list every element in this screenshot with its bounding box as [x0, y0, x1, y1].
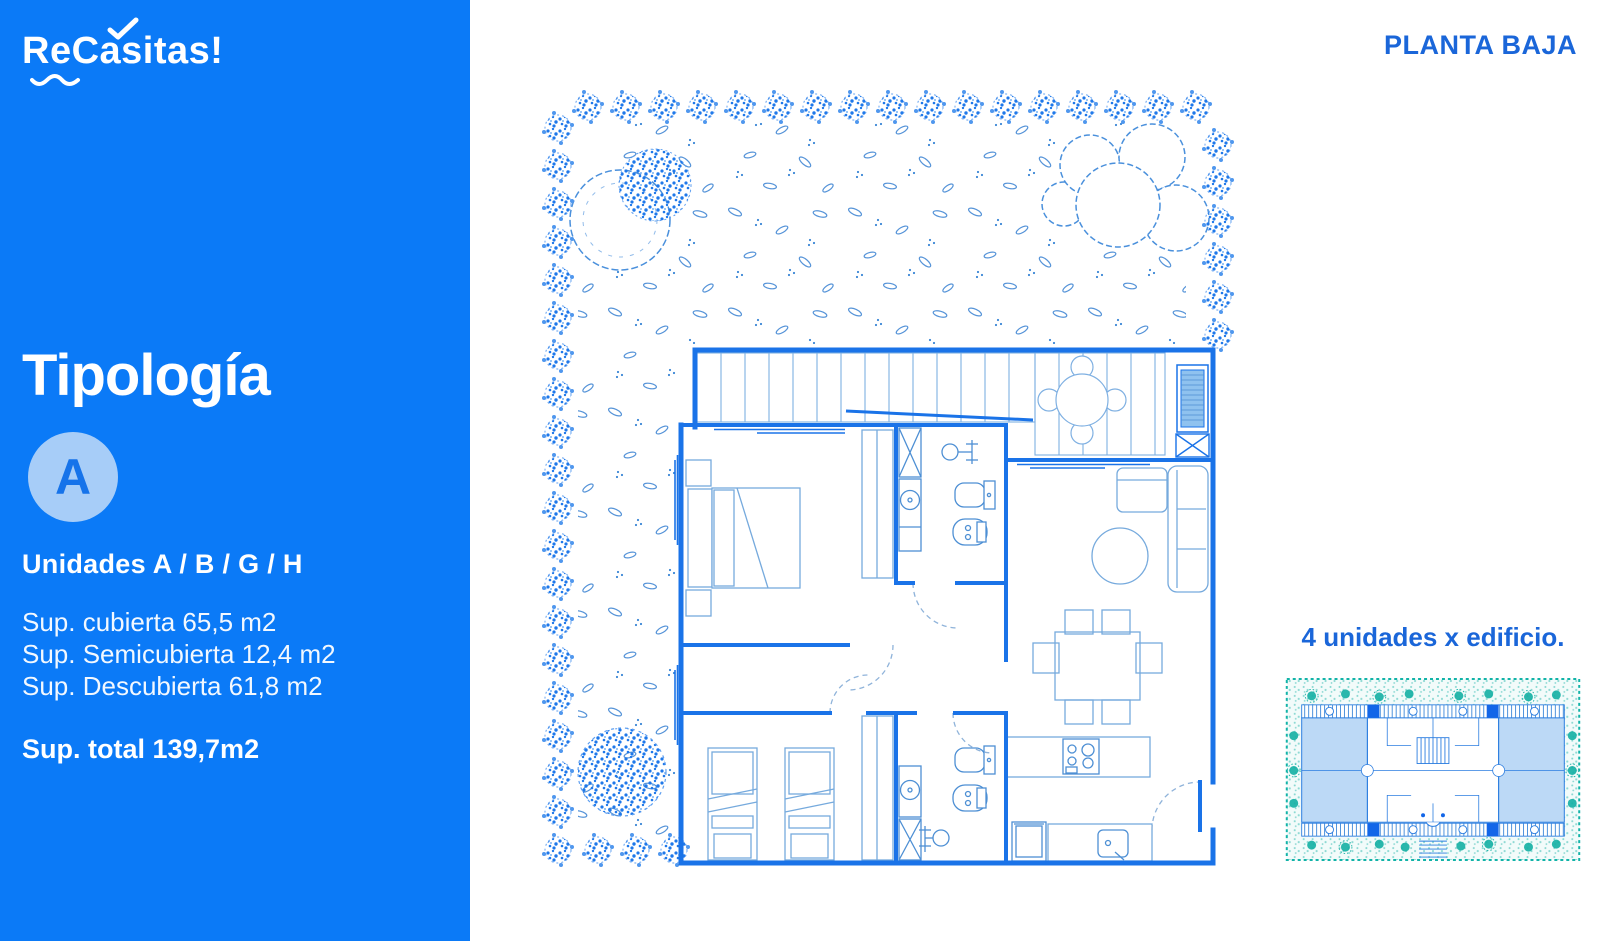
fridge-icon	[1012, 822, 1046, 861]
house-walls	[681, 350, 1213, 863]
surface-total: Sup. total 139,7m2	[22, 734, 259, 765]
rug-icon	[1092, 528, 1148, 584]
stairs-icon	[1417, 738, 1449, 764]
toilet-icon	[955, 746, 995, 774]
surface-covered: Sup. cubierta 65,5 m2	[22, 606, 336, 638]
check-icon	[106, 16, 140, 42]
brand-logo: ReCasitas!	[22, 30, 223, 73]
kitchen-sink-icon	[1098, 830, 1128, 860]
building-caption: 4 unidades x edificio.	[1283, 622, 1583, 653]
wave-icon	[30, 74, 82, 88]
surface-uncovered: Sup. Descubierta 61,8 m2	[22, 670, 336, 702]
door-swing	[830, 583, 1200, 830]
building-plan-thumbnail	[1283, 676, 1583, 865]
shower-icon	[942, 440, 978, 464]
typology-badge-letter: A	[55, 448, 91, 506]
deck-step	[846, 411, 1033, 420]
cooktop-icon	[1063, 739, 1099, 774]
dining-table-icon	[1033, 610, 1162, 724]
brand-logo-prefix: Re	[22, 30, 72, 72]
bathroom-fixtures	[899, 428, 995, 551]
bush-icon	[578, 728, 666, 816]
bathroom-fixtures	[899, 746, 995, 860]
typology-badge: A	[28, 432, 118, 522]
double-bed-icon	[686, 460, 800, 616]
patio-table-icon	[1038, 356, 1126, 444]
storage-box-icon	[1176, 434, 1209, 457]
toilet-icon	[955, 481, 995, 509]
grill-icon	[1177, 365, 1208, 432]
shower-icon	[919, 826, 949, 852]
floor-plan-drawing	[535, 85, 1240, 880]
thumb-building	[1302, 705, 1565, 857]
sidebar: ReCasitas! Tipología A Unidades A / B / …	[0, 0, 470, 941]
brochure-page: ReCasitas! Tipología A Unidades A / B / …	[0, 0, 1600, 941]
floor-label: PLANTA BAJA	[1384, 30, 1577, 61]
page-title: Tipología	[22, 342, 270, 409]
surface-semicovered: Sup. Semicubierta 12,4 m2	[22, 638, 336, 670]
single-bed-icon	[708, 748, 757, 860]
bidet-icon	[953, 785, 987, 811]
kitchen-island	[1007, 737, 1150, 777]
kitchen-counter	[1048, 824, 1152, 861]
units-line: Unidades A / B / G / H	[22, 549, 303, 580]
single-bed-icon	[785, 748, 834, 860]
brand-logo-suffix: Casitas!	[72, 30, 224, 72]
bidet-icon	[953, 519, 987, 545]
wardrobe-icon	[862, 430, 893, 860]
surface-list: Sup. cubierta 65,5 m2 Sup. Semicubierta …	[22, 606, 336, 702]
